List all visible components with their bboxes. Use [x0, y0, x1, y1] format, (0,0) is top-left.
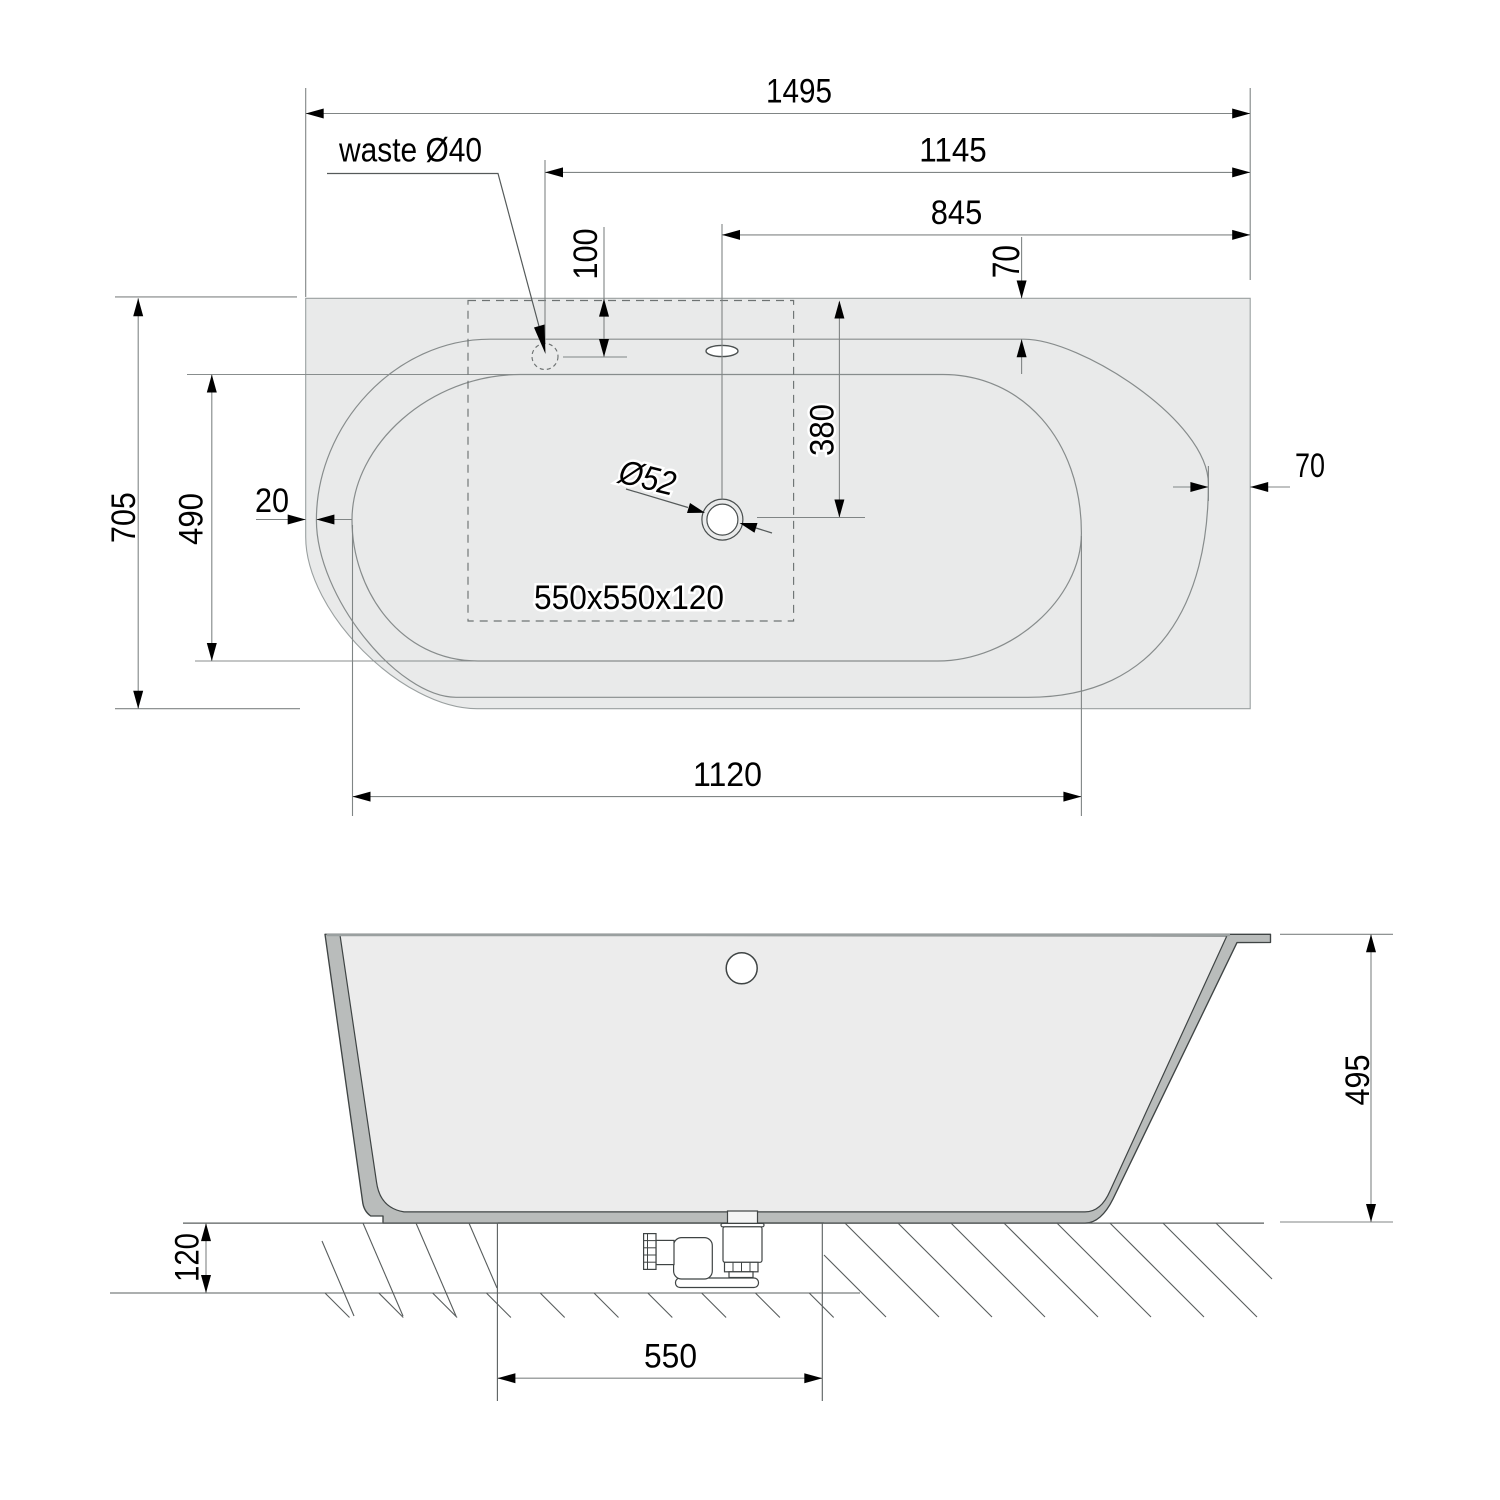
svg-text:70: 70 — [986, 245, 1028, 278]
svg-text:120: 120 — [169, 1233, 207, 1282]
svg-text:380: 380 — [804, 404, 842, 456]
svg-text:495: 495 — [1339, 1055, 1377, 1106]
svg-text:20: 20 — [255, 482, 289, 520]
svg-text:1495: 1495 — [766, 73, 832, 111]
svg-text:waste Ø40: waste Ø40 — [338, 131, 482, 169]
svg-text:1145: 1145 — [919, 132, 987, 170]
svg-text:550: 550 — [644, 1338, 697, 1376]
svg-text:490: 490 — [172, 493, 210, 545]
svg-text:550x550x120: 550x550x120 — [534, 579, 724, 617]
svg-text:100: 100 — [567, 228, 605, 279]
svg-text:1120: 1120 — [693, 756, 762, 794]
svg-text:70: 70 — [1295, 447, 1325, 485]
svg-text:705: 705 — [105, 492, 143, 543]
svg-text:845: 845 — [931, 194, 983, 232]
